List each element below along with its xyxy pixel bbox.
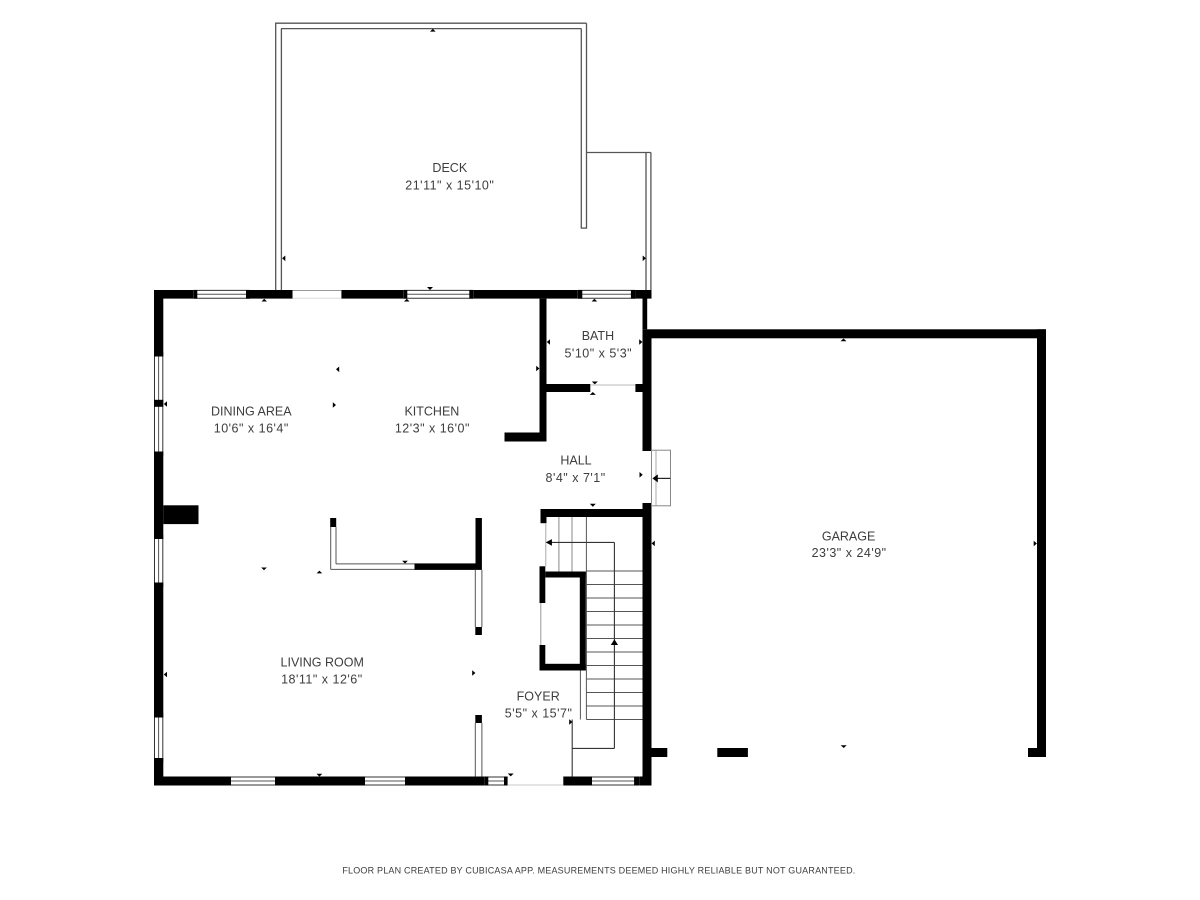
svg-text:5'5" x 15'7": 5'5" x 15'7" xyxy=(505,707,573,721)
svg-text:BATH: BATH xyxy=(582,329,614,343)
svg-text:18'11" x 12'6": 18'11" x 12'6" xyxy=(281,673,363,687)
svg-text:5'10" x 5'3": 5'10" x 5'3" xyxy=(564,347,632,361)
svg-text:KITCHEN: KITCHEN xyxy=(404,404,459,418)
svg-text:DECK: DECK xyxy=(432,161,467,175)
svg-text:12'3" x 16'0": 12'3" x 16'0" xyxy=(395,421,470,435)
svg-text:8'4" x 7'1": 8'4" x 7'1" xyxy=(546,471,606,485)
svg-text:DINING AREA: DINING AREA xyxy=(211,404,292,418)
svg-text:GARAGE: GARAGE xyxy=(822,530,876,544)
svg-text:LIVING ROOM: LIVING ROOM xyxy=(281,656,364,670)
svg-text:FLOOR PLAN CREATED BY CUBICASA: FLOOR PLAN CREATED BY CUBICASA APP. MEAS… xyxy=(342,866,855,876)
svg-text:10'6" x 16'4": 10'6" x 16'4" xyxy=(214,421,289,435)
svg-text:HALL: HALL xyxy=(560,454,591,468)
svg-text:21'11" x 15'10": 21'11" x 15'10" xyxy=(405,178,494,192)
svg-text:FOYER: FOYER xyxy=(517,690,560,704)
svg-text:23'3" x 24'9": 23'3" x 24'9" xyxy=(812,546,887,560)
